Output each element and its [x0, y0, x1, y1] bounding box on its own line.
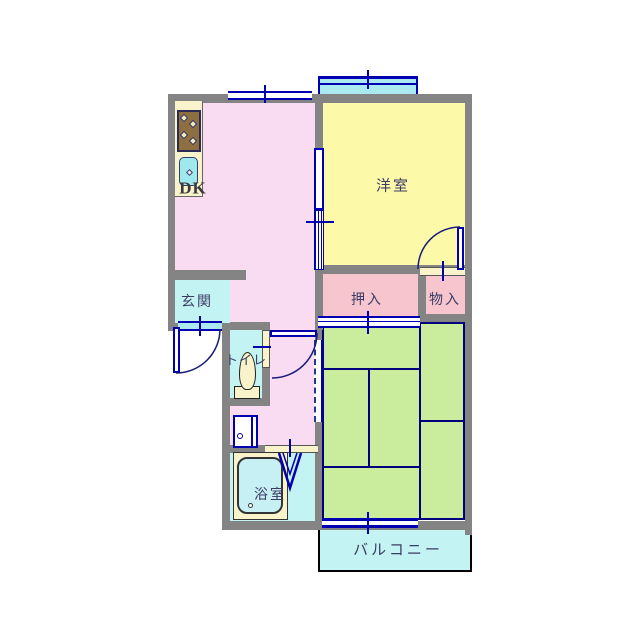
western-door-leaf: [457, 227, 464, 270]
stove-burner-icon: [180, 131, 188, 139]
label-storage: 物入: [429, 292, 461, 306]
sliding-door-dk-western-lower: [314, 210, 324, 270]
label-entrance: 玄関: [181, 294, 213, 308]
tatami-mat-line: [421, 420, 463, 422]
wall-hall-top: [230, 322, 270, 330]
window-dk-top: [228, 91, 312, 100]
washer-door-line: [251, 417, 253, 446]
label-bathroom: 浴室: [254, 487, 286, 501]
wall-storage-bottom: [418, 314, 472, 322]
tatami-mat-line: [324, 368, 419, 370]
stove-burner-icon: [189, 137, 197, 145]
sliding-partition-hall-tatami: [314, 340, 323, 422]
wall-closet-storage: [418, 274, 426, 318]
stove-burner-icon: [189, 120, 197, 128]
label-dk: DK: [179, 180, 207, 197]
tatami-mat-line: [324, 466, 419, 468]
stove-icon: [177, 110, 201, 152]
entrance-door-leaf: [173, 327, 180, 373]
tatami-mat-line: [368, 368, 370, 468]
wall-hall-tatami-lower: [315, 422, 322, 530]
washing-machine-icon: [233, 415, 258, 448]
bathtub-drain-icon: [248, 503, 253, 508]
label-closet: 押入: [351, 292, 383, 306]
window-tatami-balcony: [322, 518, 418, 528]
stove-burner-icon: [180, 114, 188, 122]
sliding-door-closet: [318, 316, 420, 328]
label-western-room: 洋室: [376, 179, 410, 194]
entrance-threshold: [178, 321, 222, 331]
label-toilet: トイレ: [225, 354, 267, 367]
wall-left-upper: [168, 94, 175, 330]
hall-door-leaf: [270, 330, 317, 337]
sliding-door-rail: [318, 321, 420, 322]
washer-knob-icon: [237, 433, 243, 439]
bay-window-rail: [320, 83, 416, 85]
wall-genkan-top: [168, 270, 246, 280]
label-balcony: バルコニー: [353, 543, 443, 558]
sliding-door-dk-western-upper: [314, 148, 324, 210]
sink-drain-icon: [186, 169, 193, 176]
floorplan-canvas: DK 洋室 玄関 押入 物入 トイレ 浴室 バルコニー: [0, 0, 640, 640]
room-tatami: [322, 322, 465, 520]
